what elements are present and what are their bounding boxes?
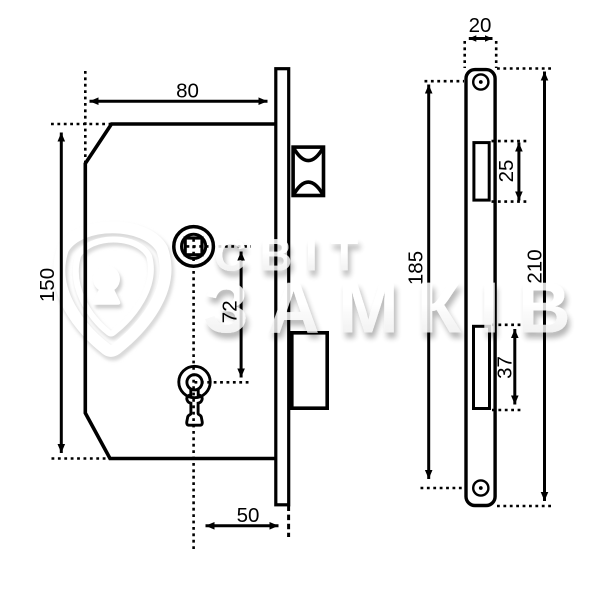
svg-text:ЗАМКІВ: ЗАМКІВ [204,268,589,349]
svg-text:37: 37 [494,356,517,379]
svg-text:72: 72 [219,300,242,323]
svg-text:20: 20 [469,14,492,37]
svg-text:80: 80 [176,80,199,103]
svg-text:50: 50 [237,504,260,527]
svg-text:25: 25 [495,160,518,183]
svg-text:150: 150 [36,268,59,302]
